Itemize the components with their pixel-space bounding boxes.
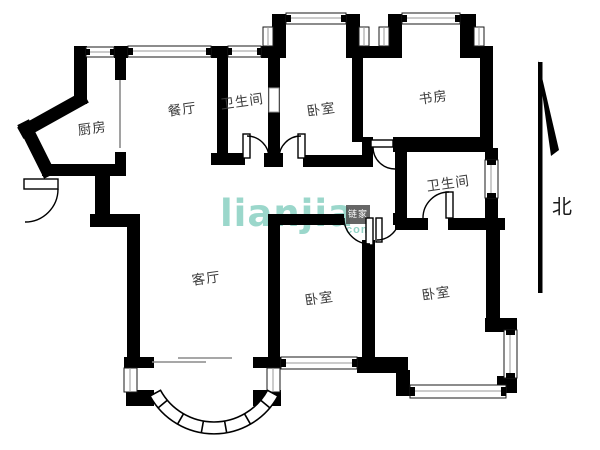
wall-segment [388, 14, 402, 58]
wall-segment [486, 228, 500, 322]
wall-opening [269, 88, 279, 112]
compass-north-label: 北 [552, 191, 572, 220]
window [402, 13, 460, 24]
window [263, 27, 273, 46]
wall-segment [211, 46, 228, 58]
wall-segment [114, 46, 128, 58]
window [286, 13, 346, 24]
wall-segment [261, 46, 273, 58]
wall-segment [485, 196, 498, 230]
wall-segment [272, 14, 286, 58]
door [423, 192, 453, 218]
wall-segment [42, 164, 126, 176]
window [410, 385, 506, 398]
wall-segment [396, 370, 410, 396]
floorplan-image: lianjia 链家 com [0, 0, 600, 450]
wall-segment [362, 240, 375, 372]
interior-details [120, 80, 279, 362]
north-arrow-icon [538, 60, 559, 293]
wall-segment [352, 50, 363, 142]
window [281, 357, 357, 369]
wall-segment [393, 213, 407, 225]
wall-segment [124, 357, 154, 368]
wall-segment [272, 214, 344, 225]
window [485, 160, 498, 198]
room-label-dining: 餐厅 [166, 96, 198, 120]
room-label-living: 客厅 [190, 265, 222, 289]
door [371, 140, 395, 169]
room-label-kitchen: 厨房 [76, 115, 108, 139]
wall-segment [253, 357, 281, 368]
wall-segment [127, 214, 140, 358]
window [379, 27, 389, 46]
room-label-bedroom-right: 卧室 [420, 280, 452, 304]
window [474, 27, 484, 46]
wall-segment [26, 128, 47, 170]
window [359, 27, 369, 46]
window [86, 47, 114, 57]
wall-segment [480, 46, 493, 152]
wall-segment [360, 46, 388, 58]
wall-segment [211, 153, 245, 165]
wall-segment [268, 214, 280, 357]
window [124, 368, 137, 392]
window [267, 368, 280, 392]
door [344, 218, 373, 245]
floorplan-drawing [0, 0, 600, 450]
room-label-bedroom-mid: 卧室 [303, 285, 335, 309]
room-label-bedroom-top: 卧室 [305, 96, 337, 120]
window [228, 46, 261, 57]
wall-segment [264, 153, 283, 167]
window [504, 330, 517, 378]
entry-door [24, 179, 58, 222]
room-label-study: 书房 [417, 84, 449, 108]
wall-segment [393, 137, 493, 152]
doors-layer [24, 134, 453, 245]
wall-segment [115, 58, 126, 80]
window [128, 46, 211, 57]
wall-segment [115, 152, 126, 176]
wall-segment [303, 155, 365, 167]
walls-layer [26, 14, 517, 406]
wall-segment [26, 100, 80, 130]
